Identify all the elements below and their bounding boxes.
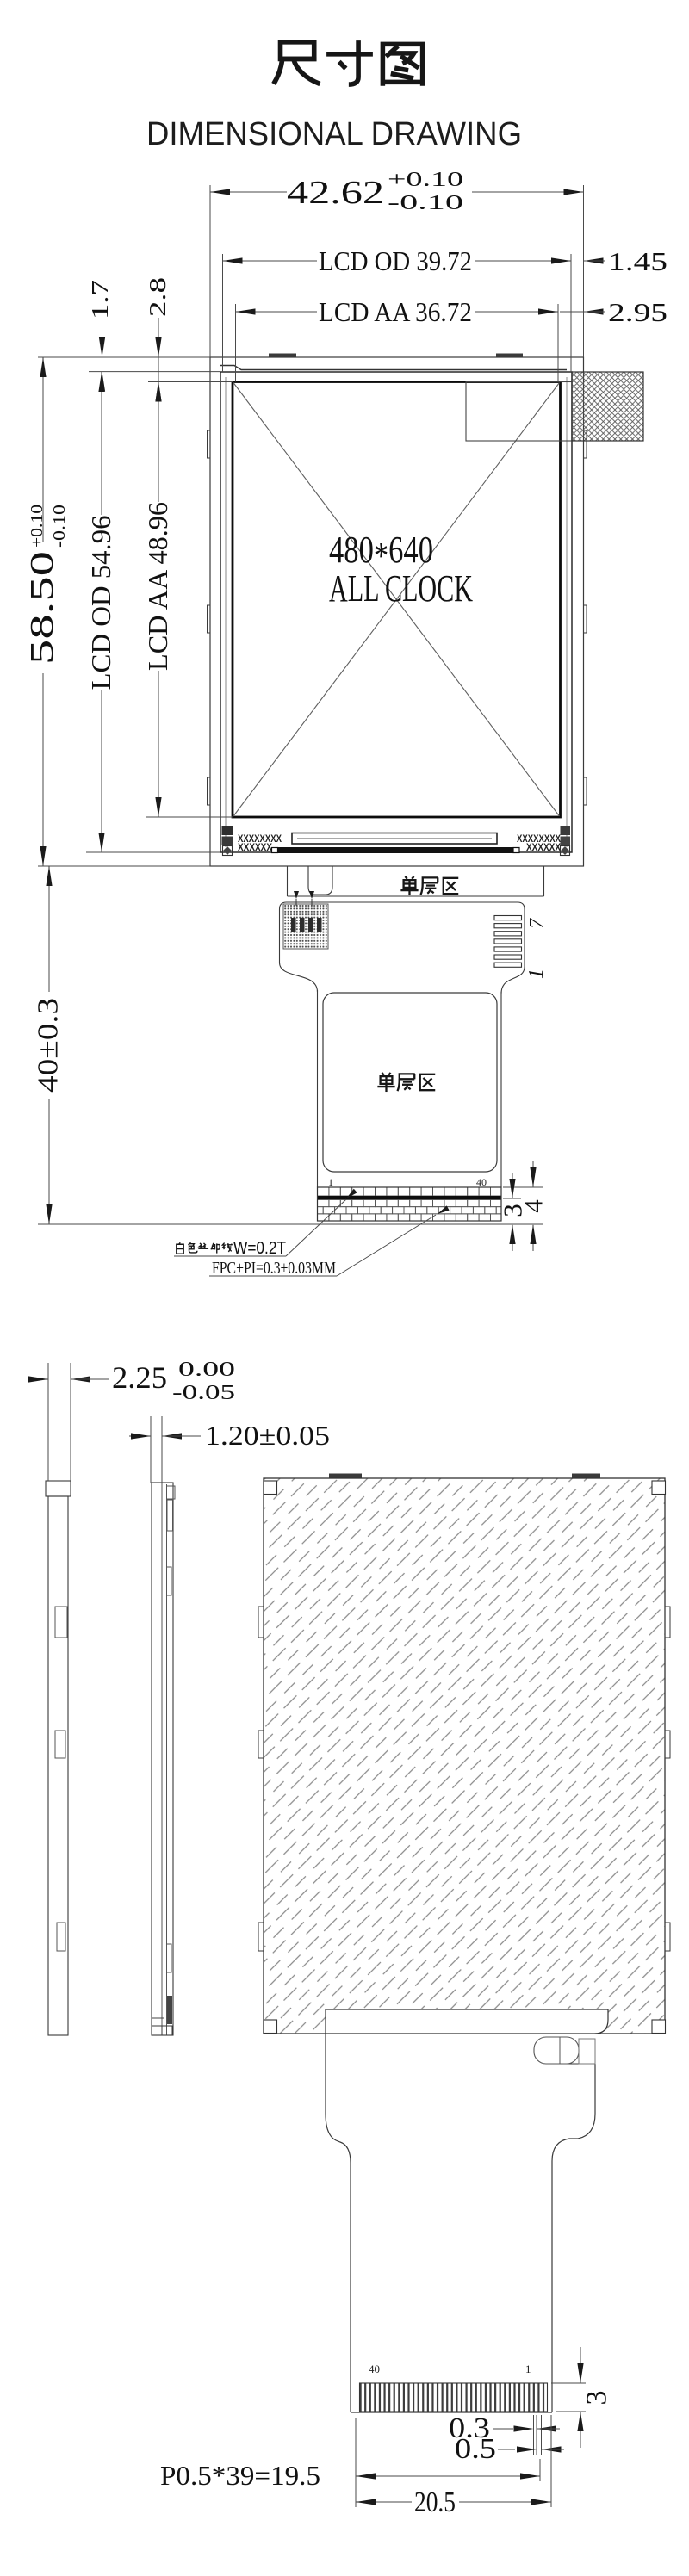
svg-text:40: 40 <box>476 1176 487 1188</box>
svg-text:0.5: 0.5 <box>455 2433 496 2465</box>
svg-text:-0.05: -0.05 <box>172 1382 235 1404</box>
svg-text:1: 1 <box>525 969 548 979</box>
svg-text:3: 3 <box>581 2391 613 2406</box>
svg-text:XXXXXX: XXXXXX <box>526 843 561 853</box>
svg-text:LCD AA 48.96: LCD AA 48.96 <box>142 502 173 671</box>
svg-text:1.20±0.05: 1.20±0.05 <box>205 1420 330 1451</box>
svg-text:58.50: 58.50 <box>24 551 60 665</box>
svg-text:2.95: 2.95 <box>608 297 667 327</box>
svg-text:40±0.3: 40±0.3 <box>33 998 65 1093</box>
svg-text:2.25: 2.25 <box>112 1360 167 1395</box>
svg-text:0.00: 0.00 <box>178 1359 235 1381</box>
svg-text:+0.10: +0.10 <box>28 505 47 548</box>
svg-text:7: 7 <box>526 918 549 929</box>
svg-text:1.45: 1.45 <box>608 246 667 276</box>
svg-text:FPC+PI=0.3±0.03MM: FPC+PI=0.3±0.03MM <box>212 1259 336 1278</box>
svg-text:-0.10: -0.10 <box>388 192 463 214</box>
svg-text:-0.10: -0.10 <box>50 505 69 548</box>
svg-text:+0.10: +0.10 <box>388 169 463 191</box>
svg-text:LCD AA 36.72: LCD AA 36.72 <box>319 296 472 327</box>
svg-text:DIMENSIONAL DRAWING: DIMENSIONAL DRAWING <box>146 116 522 152</box>
svg-text:ALL CLOCK: ALL CLOCK <box>329 567 473 610</box>
svg-text:40: 40 <box>369 2362 380 2375</box>
svg-text:42.62: 42.62 <box>287 175 384 211</box>
svg-text:P0.5*39=19.5: P0.5*39=19.5 <box>160 2460 320 2491</box>
svg-text:1: 1 <box>328 1176 333 1188</box>
svg-text:W=0.2T: W=0.2T <box>233 1239 286 1258</box>
svg-text:1.7: 1.7 <box>87 280 113 319</box>
svg-text:LCD OD 39.72: LCD OD 39.72 <box>319 245 472 276</box>
svg-text:LCD OD 54.96: LCD OD 54.96 <box>85 516 116 690</box>
svg-text:XXXXXX: XXXXXX <box>238 843 272 853</box>
svg-text:4: 4 <box>518 1199 549 1213</box>
svg-text:1: 1 <box>525 2362 531 2375</box>
svg-text:2.8: 2.8 <box>145 277 171 317</box>
svg-text:20.5: 20.5 <box>414 2486 456 2518</box>
